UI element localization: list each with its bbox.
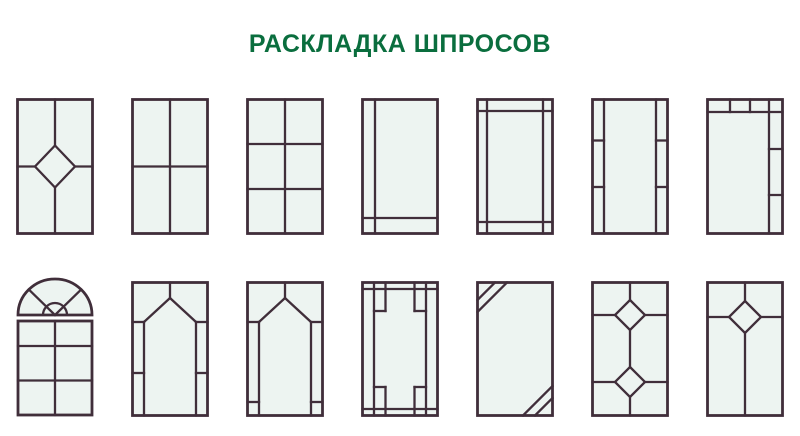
windows-grid xyxy=(0,98,800,417)
double-diamond-drawing xyxy=(591,281,669,417)
window-edge-left-bottom xyxy=(361,98,439,235)
window-row-2 xyxy=(0,277,800,417)
window-side-strips xyxy=(591,98,669,235)
window-inset-border-cross xyxy=(476,98,554,235)
window-diamond-center xyxy=(16,98,94,235)
window-row-1 xyxy=(0,98,800,235)
top-band-right-strip-drawing xyxy=(706,98,784,235)
edge-left-bottom-drawing xyxy=(361,98,439,235)
window-lancet-arch-bottom-ticks xyxy=(246,281,324,417)
window-top-band-right-strip xyxy=(706,98,784,235)
lancet-arch-bottom-ticks-drawing xyxy=(246,281,324,417)
corner-diagonals-drawing xyxy=(476,281,554,417)
window-four-pane-cross xyxy=(131,98,209,235)
window-fret-corners xyxy=(361,281,439,417)
single-diamond-high-drawing xyxy=(706,281,784,417)
window-lancet-arch-low-ticks xyxy=(131,281,209,417)
diamond-center-drawing xyxy=(16,98,94,235)
page-title: РАСКЛАДКА ШПРОСОВ xyxy=(0,0,800,57)
inset-border-cross-drawing xyxy=(476,98,554,235)
arch-fan-six-pane-drawing xyxy=(16,277,94,417)
lancet-arch-low-ticks-drawing xyxy=(131,281,209,417)
window-single-diamond-high xyxy=(706,281,784,417)
window-arch-fan-six-pane xyxy=(16,277,94,417)
window-six-pane-grid xyxy=(246,98,324,235)
six-pane-grid-drawing xyxy=(246,98,324,235)
four-pane-cross-drawing xyxy=(131,98,209,235)
side-strips-drawing xyxy=(591,98,669,235)
fret-corners-drawing xyxy=(361,281,439,417)
page: РАСКЛАДКА ШПРОСОВ xyxy=(0,0,800,436)
window-double-diamond xyxy=(591,281,669,417)
window-corner-diagonals xyxy=(476,281,554,417)
